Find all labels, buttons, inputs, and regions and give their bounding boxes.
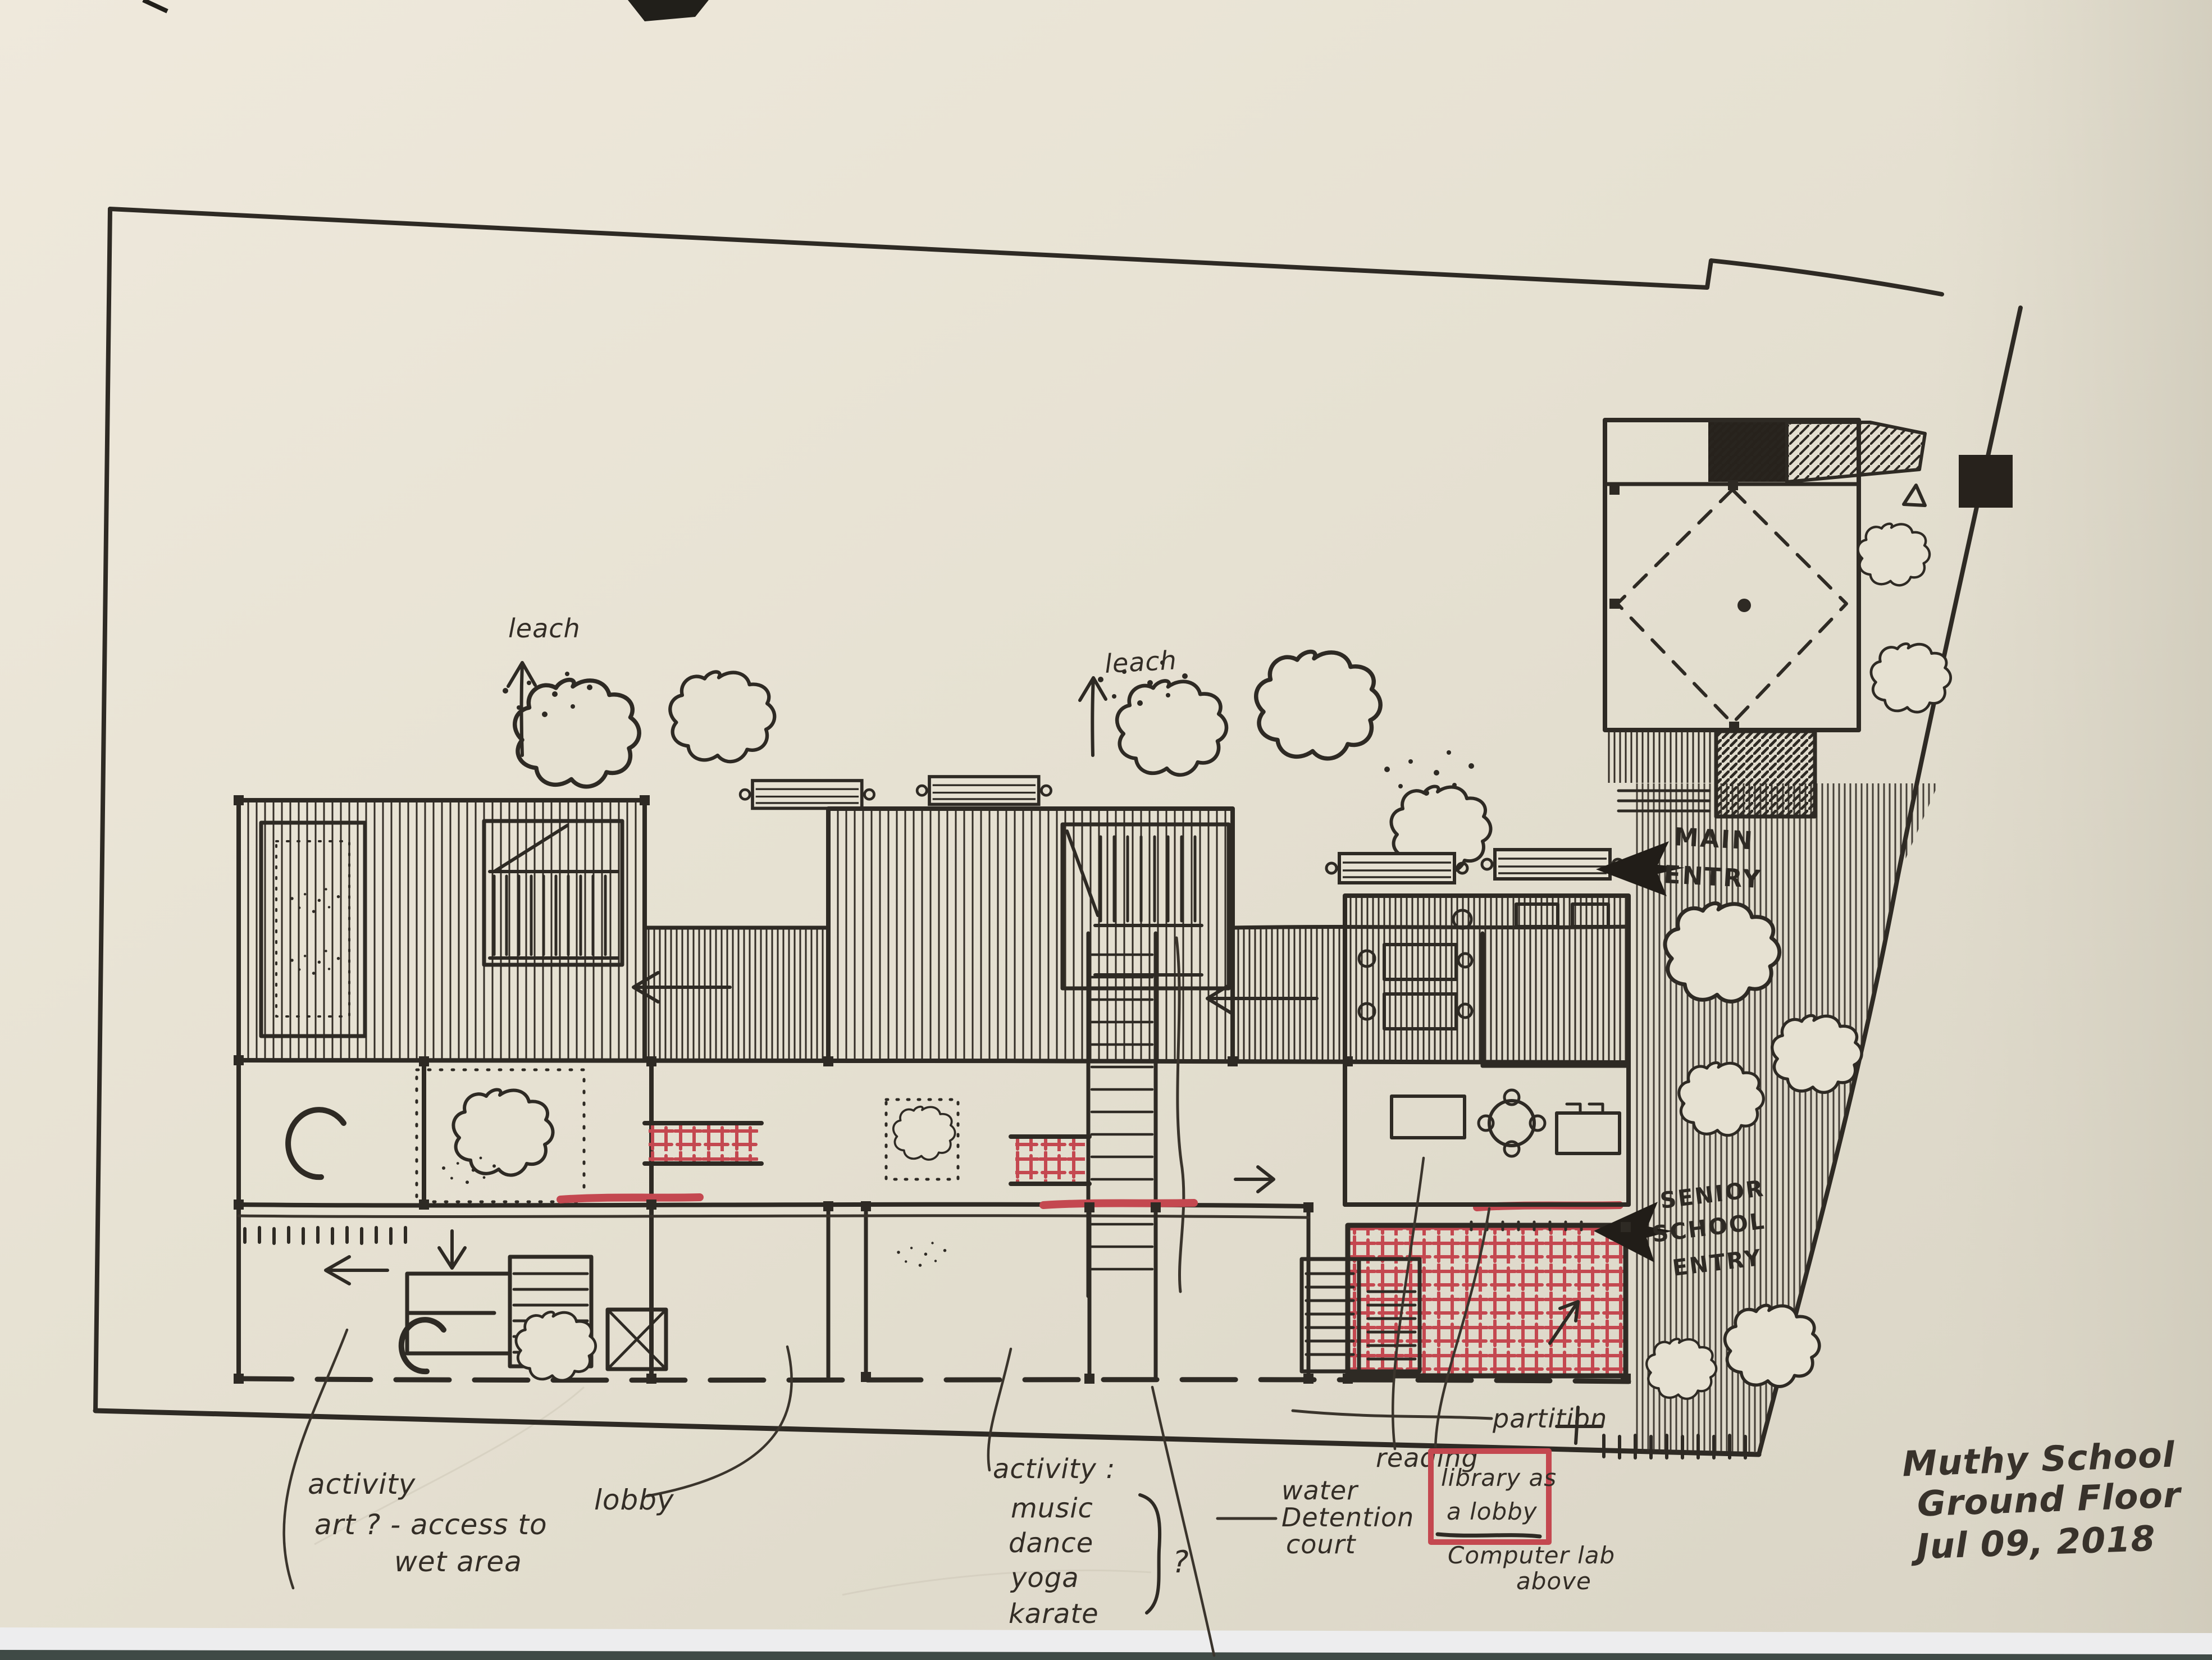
svg-text:above: above: [1516, 1567, 1591, 1595]
entry-court-roof-band: [1708, 422, 1925, 482]
svg-text:activity: activity: [308, 1468, 416, 1501]
pergola-bench: [917, 777, 1051, 804]
svg-text:?: ?: [1173, 1544, 1189, 1580]
red-grid-box-b: [1011, 1137, 1089, 1184]
svg-text:Detention: Detention: [1281, 1502, 1414, 1533]
svg-text:music: music: [1011, 1493, 1093, 1524]
main-entry-label-1: MAIN: [1673, 823, 1755, 855]
red-grid-box-a: [645, 1123, 761, 1164]
pergola-bench: [740, 781, 874, 808]
svg-text:library as: library as: [1441, 1464, 1557, 1492]
title-line-3: Jul 09, 2018: [1909, 1518, 2156, 1567]
main-entry-label-2: ENTRY: [1663, 860, 1763, 894]
svg-text:Computer lab: Computer lab: [1448, 1542, 1615, 1569]
annotation-lobby: lobby: [594, 1484, 674, 1516]
title-block: Muthy School Ground Floor Jul 09, 2018: [1901, 1434, 2184, 1567]
svg-text:a lobby: a lobby: [1447, 1498, 1538, 1525]
annotation-partition: partition: [1492, 1403, 1607, 1434]
svg-text:dance: dance: [1009, 1527, 1093, 1559]
svg-text:art ? - access to: art ? - access to: [314, 1508, 548, 1541]
sketch-photo: leach leach: [0, 0, 2212, 1660]
svg-text:water: water: [1281, 1475, 1359, 1506]
svg-text:yoga: yoga: [1010, 1562, 1079, 1594]
courtyard-bench: [1326, 854, 1467, 883]
dark-block-ne: [1959, 455, 2013, 508]
svg-text:karate: karate: [1009, 1598, 1099, 1630]
svg-text:court: court: [1286, 1529, 1357, 1559]
leach-label-left: leach: [508, 613, 581, 644]
leach-label-right: leach: [1104, 645, 1178, 679]
svg-text:wet area: wet area: [394, 1545, 522, 1578]
svg-text:activity :: activity :: [993, 1453, 1115, 1485]
courtyard-bench: [1482, 850, 1623, 879]
library-block: [1302, 1222, 1626, 1376]
